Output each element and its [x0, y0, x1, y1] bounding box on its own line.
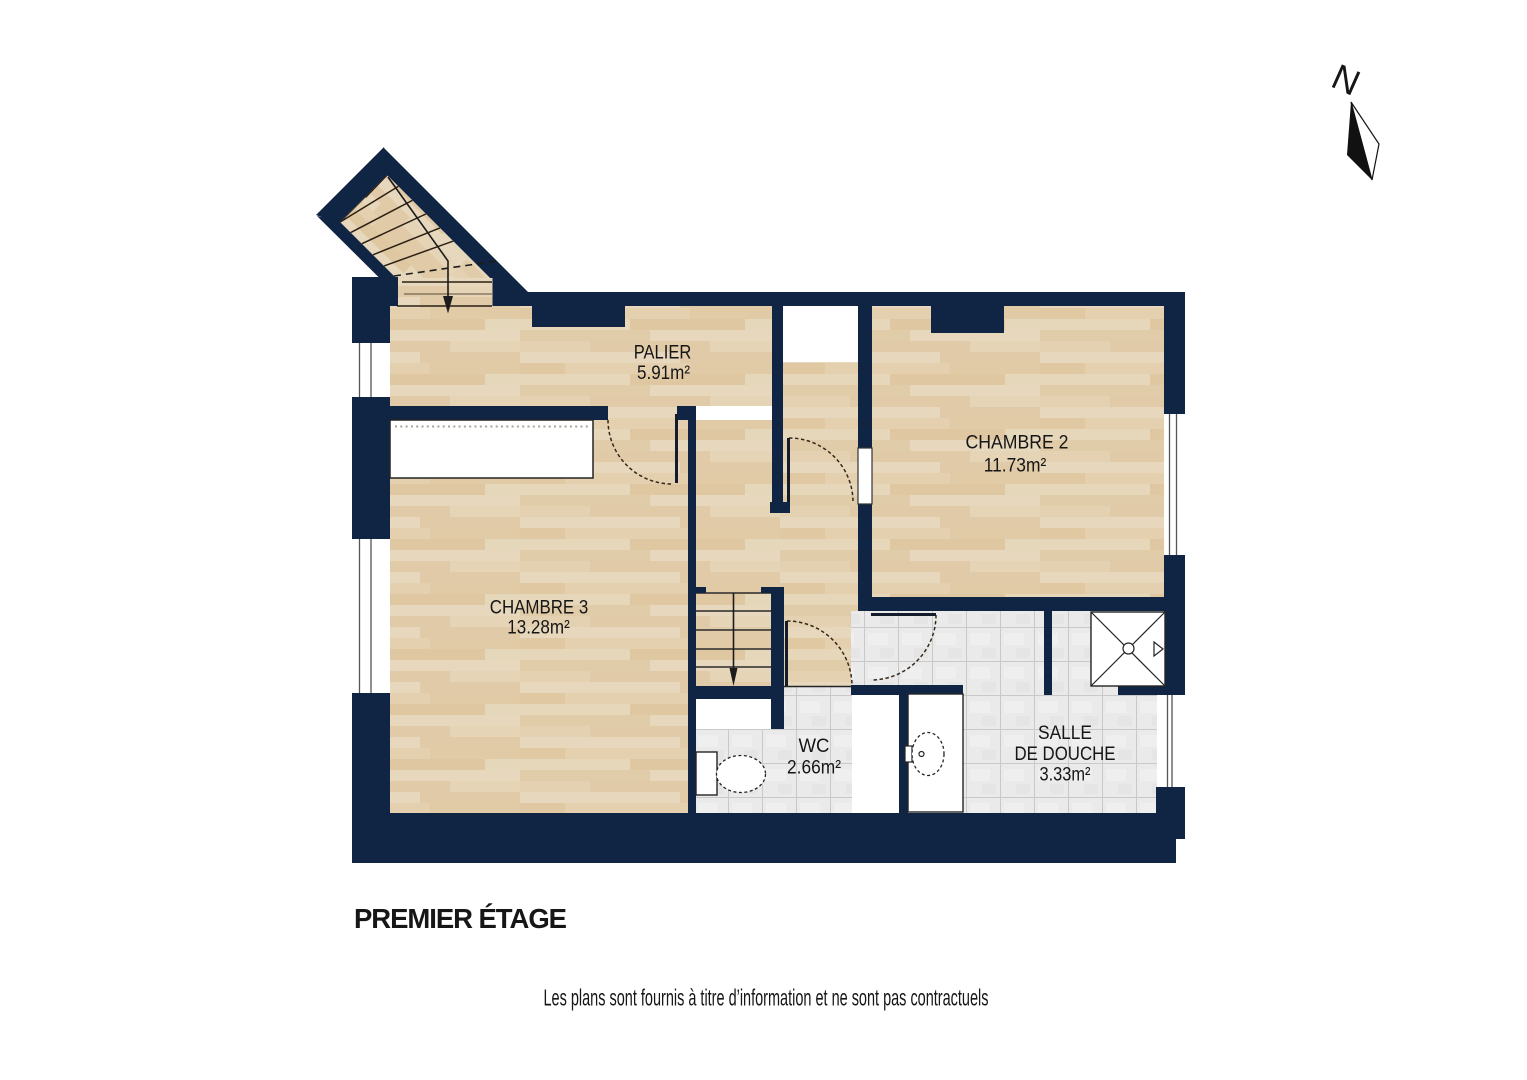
- svg-text:Les plans sont fournis à titre: Les plans sont fournis à titre d’informa…: [544, 985, 989, 1011]
- svg-text:CHAMBRE 2: CHAMBRE 2: [966, 432, 1069, 454]
- svg-text:3.33m²: 3.33m²: [1040, 764, 1091, 786]
- svg-text:SALLE: SALLE: [1038, 722, 1092, 744]
- svg-text:2.66m²: 2.66m²: [787, 757, 841, 779]
- svg-text:CHAMBRE 3: CHAMBRE 3: [490, 597, 589, 619]
- svg-text:5.91m²: 5.91m²: [637, 362, 690, 384]
- svg-text:11.73m²: 11.73m²: [984, 455, 1047, 477]
- svg-text:WC: WC: [799, 735, 830, 757]
- svg-text:PALIER: PALIER: [634, 342, 692, 364]
- svg-text:13.28m²: 13.28m²: [507, 617, 570, 639]
- svg-text:DE DOUCHE: DE DOUCHE: [1015, 743, 1116, 765]
- svg-text:PREMIER ÉTAGE: PREMIER ÉTAGE: [354, 903, 567, 934]
